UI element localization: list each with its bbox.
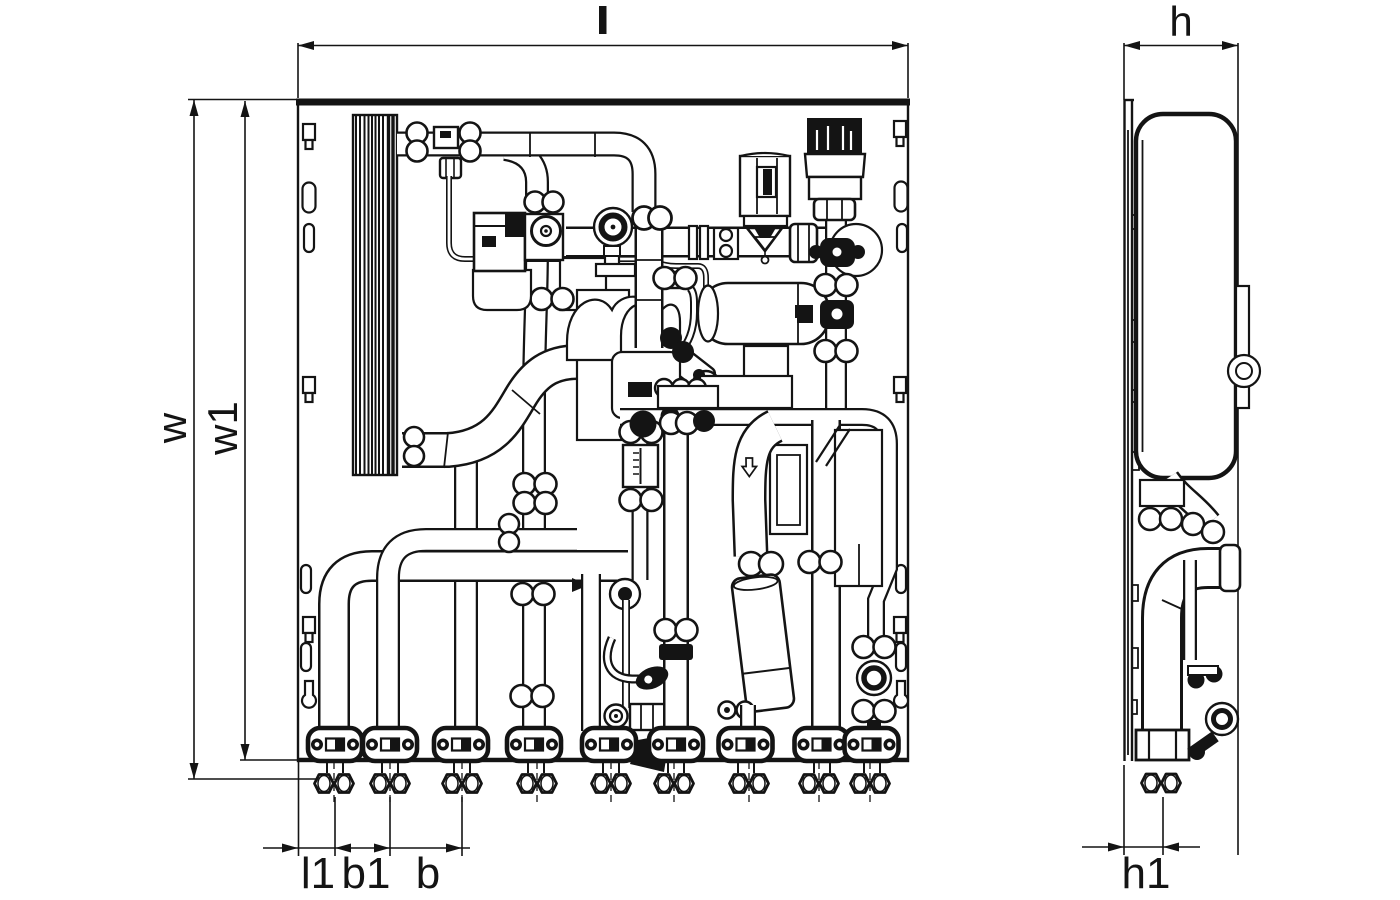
svg-text:l1: l1: [301, 849, 335, 898]
svg-text:h1: h1: [1122, 849, 1171, 898]
svg-text:b1: b1: [342, 849, 391, 898]
svg-text:w1: w1: [199, 401, 246, 456]
svg-text:b: b: [416, 849, 440, 898]
svg-text:w: w: [148, 412, 195, 444]
svg-text:h: h: [1169, 0, 1192, 45]
